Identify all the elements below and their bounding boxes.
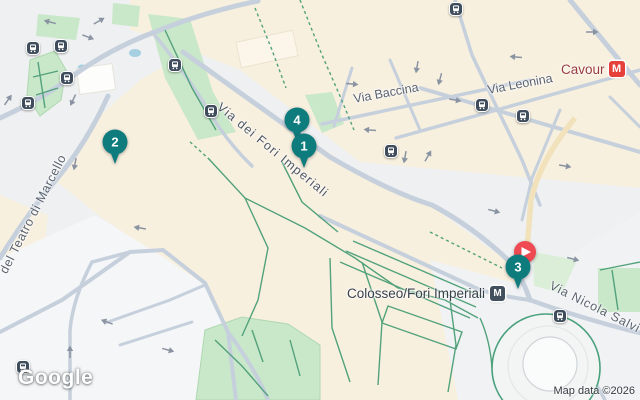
tram-stop-icon[interactable] [26, 41, 40, 55]
bus-stop-icon[interactable] [204, 104, 218, 118]
bus-stop-icon[interactable] [54, 39, 68, 53]
marker-label: 1 [300, 139, 307, 154]
bus-stop-icon[interactable] [475, 98, 489, 112]
bus-stop-icon[interactable] [21, 96, 35, 110]
bus-stop-icon[interactable] [553, 309, 567, 323]
station-cavour[interactable]: Cavour M [561, 61, 625, 77]
bus-stop-icon[interactable] [60, 71, 74, 85]
metro-icon[interactable]: M [609, 61, 625, 77]
map-attribution: Map data ©2026 [554, 385, 636, 397]
map-marker-3[interactable]: 3 [501, 251, 535, 291]
marker-label: 4 [293, 113, 301, 128]
map-viewport[interactable]: Via Baccina Via Leonina Via dei Fori Imp… [0, 0, 640, 400]
google-logo[interactable]: Google [18, 366, 93, 390]
station-colosseo[interactable]: Colosseo/Fori Imperiali M [347, 286, 505, 301]
park-patch-1 [112, 3, 140, 27]
station-colosseo-label: Colosseo/Fori Imperiali [347, 286, 485, 301]
marker-label: 3 [514, 260, 521, 275]
marker-label: 2 [111, 135, 118, 150]
park-patch-2 [36, 14, 80, 40]
station-cavour-label: Cavour [561, 62, 605, 77]
bus-stop-icon[interactable] [384, 144, 398, 158]
map-canvas[interactable] [0, 0, 640, 400]
map-marker-1[interactable]: 1 [287, 130, 321, 170]
colosseum-inner-ring [523, 337, 577, 391]
map-marker-2[interactable]: 2 [98, 126, 132, 166]
bus-stop-icon[interactable] [168, 58, 182, 72]
pond-1 [129, 49, 141, 57]
bus-stop-icon[interactable] [516, 109, 530, 123]
bus-stop-icon[interactable] [449, 2, 463, 16]
